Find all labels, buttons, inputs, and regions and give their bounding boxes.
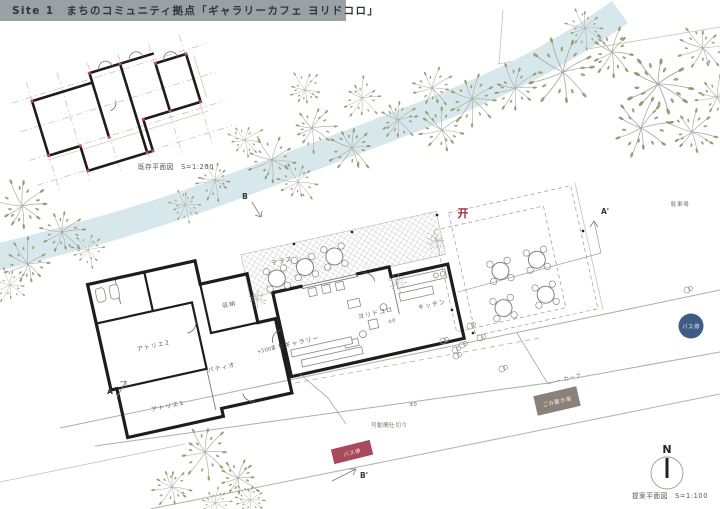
bush-icon bbox=[453, 352, 462, 359]
section-marker-a: A bbox=[107, 387, 113, 396]
cafe-table bbox=[523, 245, 552, 274]
bush-icon bbox=[452, 346, 461, 353]
trash-area: ごみ置き場 bbox=[533, 386, 580, 415]
annotation-parking: 駐車場 bbox=[671, 200, 689, 208]
reference-dot bbox=[436, 214, 438, 216]
bus-stop-existing: バス停 bbox=[679, 314, 704, 339]
level-yoridokoro: ±0 bbox=[387, 318, 396, 326]
north-label: N bbox=[662, 443, 671, 456]
reference-dot bbox=[293, 243, 295, 245]
tree-icon bbox=[626, 58, 694, 115]
tree-icon bbox=[227, 127, 263, 158]
cafe-table bbox=[489, 294, 518, 323]
room-label-storage: 収納 bbox=[221, 299, 237, 310]
outdoor-tables bbox=[481, 245, 561, 322]
tree-icon bbox=[151, 471, 192, 506]
tree-icon bbox=[290, 72, 320, 104]
section-marker-b-prime: B' bbox=[360, 471, 368, 480]
existing-plan-caption: 既存平面図 S=1:200 bbox=[138, 162, 214, 171]
tree-icon bbox=[181, 428, 226, 481]
tree-icon bbox=[694, 74, 720, 116]
room-label-kitchen: キッチン bbox=[417, 298, 447, 311]
room-label-patio: パティオ bbox=[207, 361, 236, 374]
bus-stop-existing-label: バス停 bbox=[682, 323, 700, 331]
header-bar: Site 1 まちのコミュニティ拠点「ギャラリーカフェ ヨリドコロ」 bbox=[0, 0, 346, 21]
reference-dot bbox=[351, 231, 353, 233]
reference-dot bbox=[451, 309, 453, 311]
tree-icon bbox=[615, 96, 674, 158]
proposed-plan-caption: 提案平面図 S=1:100 bbox=[632, 491, 708, 500]
site-plan-canvas: Site 1 まちのコミュニティ拠点「ギャラリーカフェ ヨリドコロ」 bbox=[0, 0, 720, 509]
cafe-table bbox=[486, 257, 515, 286]
annotation-curve: カーブ bbox=[563, 371, 582, 383]
bush-icon bbox=[684, 286, 693, 293]
bus-stop-new: バス停 bbox=[331, 440, 373, 464]
cafe-table bbox=[531, 280, 560, 309]
shrine-torii-icon: 开 bbox=[458, 207, 469, 220]
reference-dot bbox=[472, 332, 474, 334]
reference-dot bbox=[582, 230, 584, 232]
annotation-movable-partition: 可動間仕切り bbox=[371, 421, 408, 429]
existing-floor-plan bbox=[7, 28, 236, 199]
bush-icon bbox=[499, 365, 508, 372]
level-patio: +500 bbox=[257, 346, 272, 355]
site-plan-drawing: 既存平面図 S=1:200 bbox=[0, 0, 720, 509]
tree-icon bbox=[0, 179, 47, 229]
river bbox=[0, 12, 620, 260]
page-title: Site 1 まちのコミュニティ拠点「ギャラリーカフェ ヨリドコロ」 bbox=[0, 3, 379, 18]
tree-icon bbox=[344, 75, 382, 117]
room-label-atelier2: アトリエ2 bbox=[136, 339, 171, 353]
section-marker-a-prime: A' bbox=[601, 207, 609, 216]
level-road: ±0 bbox=[409, 402, 417, 408]
north-compass: N bbox=[651, 443, 683, 489]
road-side-bushes bbox=[440, 286, 693, 372]
section-marker-b: B bbox=[242, 192, 248, 201]
tree-icon bbox=[666, 108, 719, 153]
room-label-atelier1: アトリエ1 bbox=[151, 399, 186, 413]
